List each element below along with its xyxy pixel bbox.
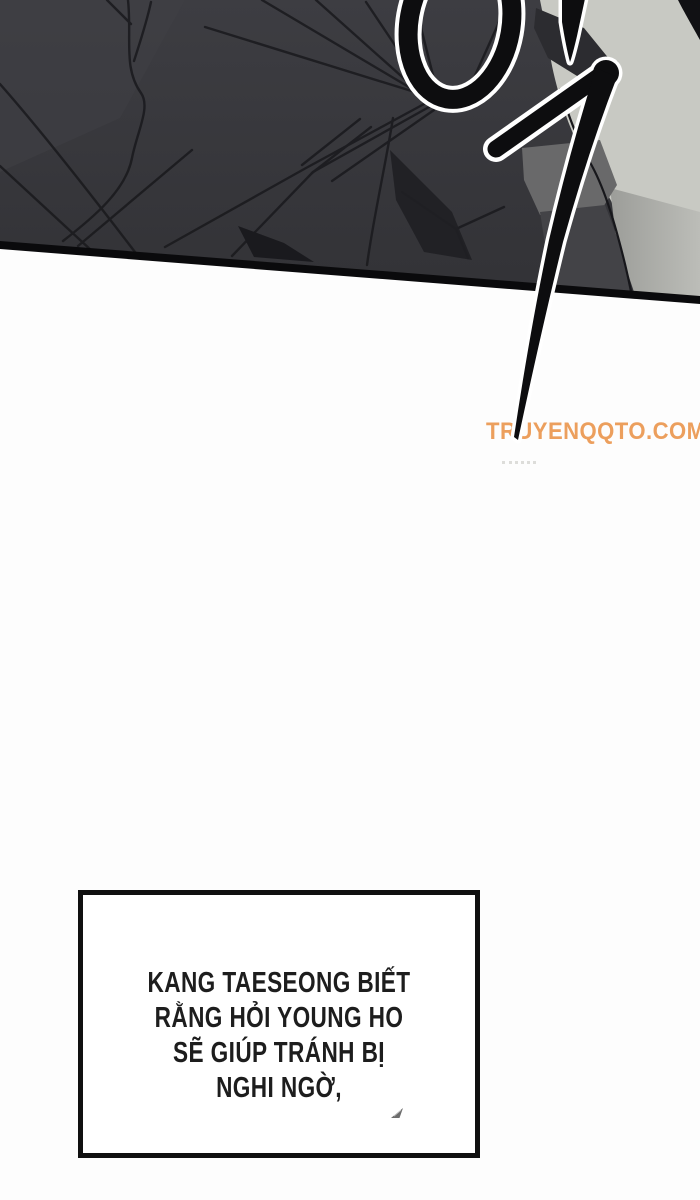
dialog-line: KANG TAESEONG BIẾT: [148, 966, 411, 1001]
dialog-box: KANG TAESEONG BIẾT RẰNG HỎI YOUNG HO SẼ …: [78, 890, 480, 1158]
dialog-line: SẼ GIÚP TRÁNH BỊ: [173, 1036, 385, 1071]
quill-mark-icon: [390, 1107, 404, 1119]
dialog-text: KANG TAESEONG BIẾT RẰNG HỎI YOUNG HO SẼ …: [126, 895, 432, 1153]
dialog-line: NGHI NGỜ,: [216, 1071, 342, 1106]
comic-panel-art: [0, 0, 700, 470]
dialog-line: RẰNG HỎI YOUNG HO: [155, 1001, 404, 1036]
webtoon-page: TRUYENQQTO.COM: [0, 0, 700, 1200]
faint-dash-mark: [502, 461, 536, 464]
